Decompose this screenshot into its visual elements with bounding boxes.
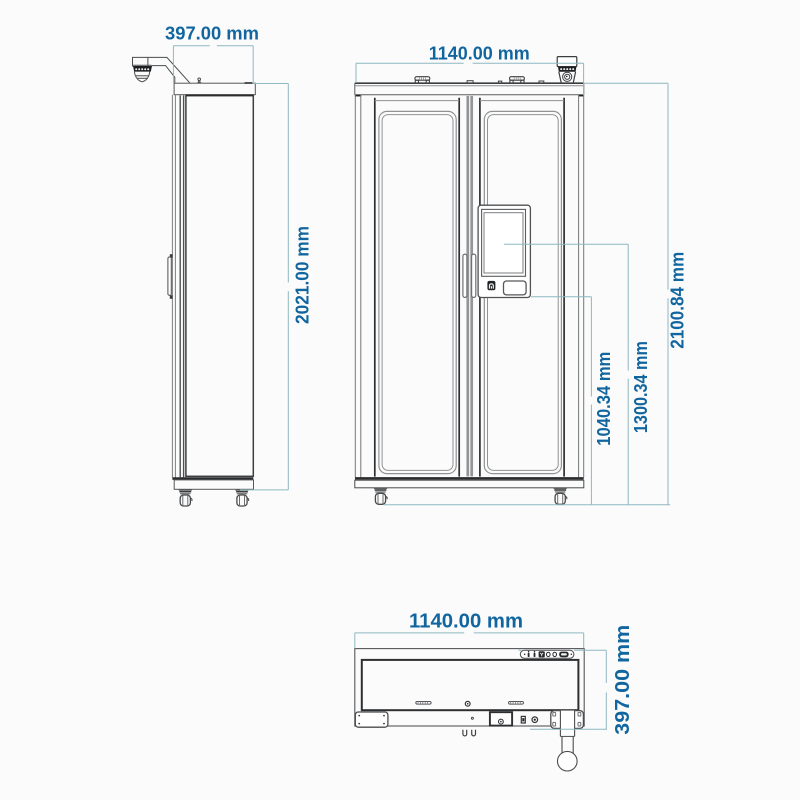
svg-text:2021.00 mm: 2021.00 mm <box>293 226 313 324</box>
svg-text:1140.00 mm: 1140.00 mm <box>429 44 530 64</box>
svg-text:2100.84 mm: 2100.84 mm <box>667 252 687 349</box>
svg-text:1300.34 mm: 1300.34 mm <box>631 341 651 433</box>
svg-text:1140.00 mm: 1140.00 mm <box>409 610 523 632</box>
svg-text:397.00 mm: 397.00 mm <box>612 625 634 735</box>
svg-text:1040.34 mm: 1040.34 mm <box>594 352 614 446</box>
svg-text:397.00 mm: 397.00 mm <box>165 24 259 44</box>
